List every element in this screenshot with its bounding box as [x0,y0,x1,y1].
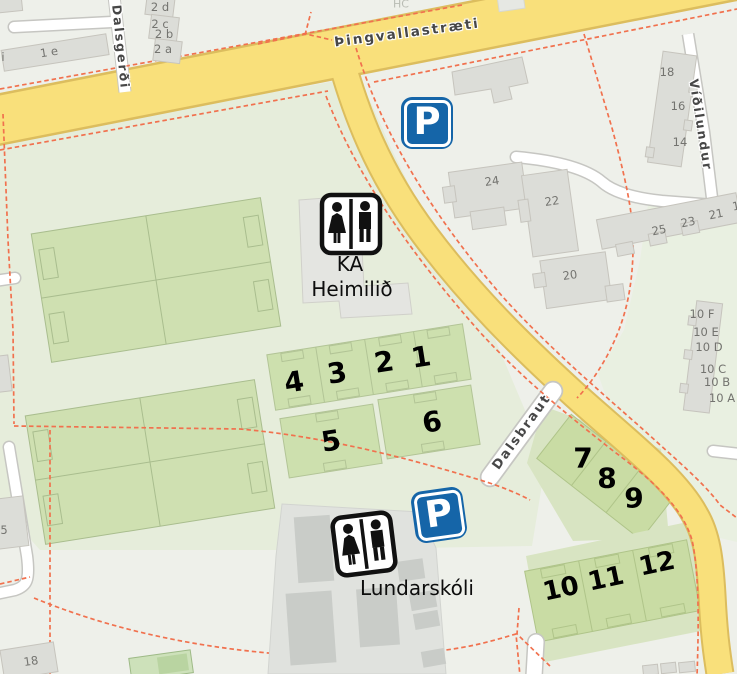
house-number-10a: 10 A [709,391,735,405]
place-label-ka-line2: Heimilið [311,277,392,301]
house-number-23: 23 [679,214,696,231]
parking-icon-letter: P [410,486,469,545]
house-number-i: i [1,50,4,64]
restroom-icon-lundarskoli [327,508,400,580]
house-number-hc-partial: HC [393,0,409,11]
house-number-10d: 10 D [695,340,722,354]
house-number-10f: 10 F [690,307,715,321]
house-number-2a: 2 a [154,42,172,56]
house-number-10b: 10 B [704,375,730,389]
house-number-2b: 2 b [155,27,173,41]
house-number-24: 24 [484,173,500,189]
map-canvas[interactable]: Þingvallastræti Dalsgerði Víðilundur Dal… [0,0,737,674]
parking-icon-south: P [410,486,469,545]
house-number-21: 21 [707,206,724,223]
house-number-25: 25 [650,222,667,239]
house-number-18-south: 18 [23,653,39,669]
house-number-5: 5 [0,523,7,537]
house-number-22: 22 [544,193,560,209]
house-number-10c: 10 C [700,362,726,376]
house-number-18-vidilundur: 18 [660,65,675,79]
restroom-icon-ka [319,192,383,256]
place-label-lundarskoli: Lundarskóli [360,576,474,600]
house-number-14: 14 [673,135,688,149]
house-number-1e: 1 e [39,44,59,61]
house-number-10e: 10 E [693,325,719,339]
parking-icon-north: P [401,97,453,149]
house-number-2d: 2 d [151,0,169,14]
field-number-9: 9 [624,482,643,515]
house-number-20: 20 [562,267,578,283]
field-number-7: 7 [573,442,592,475]
field-number-8: 8 [597,462,616,495]
house-number-16: 16 [671,99,686,113]
parking-icon-letter: P [401,97,453,149]
